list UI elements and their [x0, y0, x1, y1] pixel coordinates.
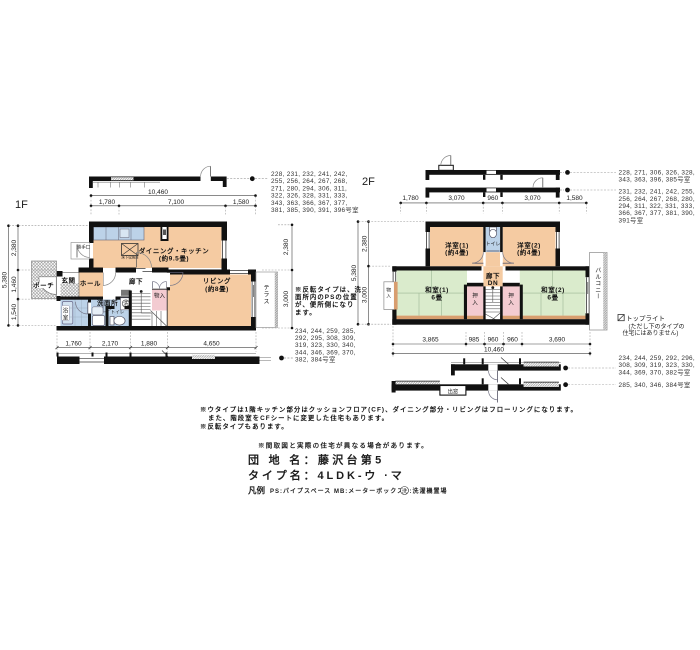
svg-text:物入: 物入 — [154, 291, 166, 299]
svg-text:トイレ: トイレ — [485, 242, 500, 248]
svg-text:押: 押 — [508, 292, 514, 300]
svg-text:960: 960 — [488, 337, 499, 344]
svg-text:1,580: 1,580 — [233, 199, 250, 206]
svg-text:入: 入 — [508, 301, 514, 307]
svg-text:3,000: 3,000 — [283, 290, 290, 307]
svg-text:凡例: 凡例 — [248, 486, 266, 496]
svg-text:廊下: 廊下 — [486, 271, 500, 280]
svg-text:ホール: ホール — [80, 279, 101, 287]
svg-text:1,780: 1,780 — [99, 199, 116, 206]
svg-text:ポーチ: ポーチ — [33, 280, 54, 289]
svg-text:玄関: 玄関 — [61, 276, 75, 285]
svg-text:出窓: 出窓 — [448, 388, 459, 396]
svg-text:団 地 名：藤沢台第5: 団 地 名：藤沢台第5 — [248, 453, 385, 467]
svg-text:ダイニング・キッチン: ダイニング・キッチン — [139, 246, 210, 255]
svg-text:1,540: 1,540 — [11, 303, 18, 320]
svg-text:※ウタイプは1階キッチン部分はクッションフロア(CF)、ダイ: ※ウタイプは1階キッチン部分はクッションフロア(CF)、ダイニング部分・リビング… — [200, 405, 578, 414]
svg-text:1F: 1F — [15, 199, 28, 211]
svg-text:(約9.5畳): (約9.5畳) — [159, 254, 189, 263]
svg-text:※反転タイプもあります。: ※反転タイプもあります。 — [200, 422, 289, 431]
svg-text:285, 340, 346, 384号室: 285, 340, 346, 384号室 — [619, 380, 691, 389]
svg-text:1,580: 1,580 — [566, 195, 583, 202]
svg-text:(約4畳): (約4畳) — [445, 248, 469, 257]
svg-text:住宅にはありません): 住宅にはありません) — [623, 329, 679, 337]
svg-text:リビング: リビング — [203, 276, 231, 285]
svg-text:室: 室 — [63, 313, 69, 321]
svg-text:和室(1): 和室(1) — [424, 285, 449, 294]
svg-text:押: 押 — [472, 292, 478, 300]
svg-text:1,760: 1,760 — [65, 340, 82, 347]
svg-text:7,100: 7,100 — [168, 199, 185, 206]
svg-text:5,380: 5,380 — [351, 264, 358, 281]
svg-text:DN: DN — [488, 280, 499, 287]
svg-text:1,880: 1,880 — [141, 340, 158, 347]
svg-text:また、階段室をCFシートに変更した住宅もあります。: また、階段室をCFシートに変更した住宅もあります。 — [208, 413, 389, 422]
svg-text:(約8畳): (約8畳) — [205, 284, 229, 293]
svg-text:洋室(2): 洋室(2) — [517, 241, 541, 250]
svg-text:3,070: 3,070 — [524, 195, 541, 202]
svg-text:10,460: 10,460 — [484, 347, 504, 354]
svg-text:1,780: 1,780 — [402, 195, 419, 202]
svg-text:入: 入 — [386, 294, 391, 300]
svg-text:2,380: 2,380 — [362, 235, 369, 252]
svg-text:10,460: 10,460 — [148, 189, 168, 196]
svg-text:960: 960 — [487, 195, 498, 202]
svg-text:(約4畳): (約4畳) — [517, 248, 541, 257]
svg-text:(ただし下のタイプの: (ただし下のタイプの — [629, 322, 685, 330]
svg-text:トイレ: トイレ — [111, 309, 125, 314]
svg-text::洗濯機置場: :洗濯機置場 — [410, 487, 448, 495]
svg-text:勝手口: 勝手口 — [77, 243, 91, 250]
svg-text:4,650: 4,650 — [203, 340, 220, 347]
svg-text:960: 960 — [507, 337, 518, 344]
svg-text:洋室(1): 洋室(1) — [445, 241, 469, 250]
svg-text:廊下: 廊下 — [129, 276, 143, 285]
svg-text:物: 物 — [386, 287, 391, 294]
svg-text:2,380: 2,380 — [283, 238, 290, 255]
svg-text:洗: 洗 — [402, 487, 408, 495]
svg-text:6畳: 6畳 — [431, 293, 442, 302]
svg-text:2F: 2F — [362, 176, 375, 188]
svg-text:6畳: 6畳 — [547, 293, 558, 302]
svg-text:1,460: 1,460 — [11, 276, 18, 293]
svg-text:和室(2): 和室(2) — [540, 285, 565, 294]
svg-text:トップライト: トップライト — [626, 314, 665, 322]
svg-text:2,380: 2,380 — [11, 239, 18, 256]
svg-text:3,000: 3,000 — [362, 286, 369, 303]
svg-text:5,380: 5,380 — [2, 271, 9, 288]
svg-text:浴: 浴 — [63, 306, 69, 314]
svg-text:バルコニー: バルコニー — [594, 267, 601, 300]
svg-text:3,865: 3,865 — [422, 337, 439, 344]
svg-text:※間取図と実際の住宅が異なる場合があります。: ※間取図と実際の住宅が異なる場合があります。 — [258, 441, 429, 450]
svg-text:228, 231, 232, 241, 242,255, 2: 228, 231, 232, 241, 242,255, 256, 264, 2… — [271, 171, 359, 214]
svg-text:タイプ名：4LDK-ウ ·マ: タイプ名：4LDK-ウ ·マ — [248, 468, 405, 482]
svg-text:PS:パイプスペース MB:メーターボックス: PS:パイプスペース MB:メーターボックス — [270, 487, 404, 495]
svg-text:228, 271, 306, 326, 328,343, 3: 228, 271, 306, 326, 328,343, 363, 396, 3… — [619, 169, 696, 183]
svg-text:3,690: 3,690 — [549, 337, 566, 344]
svg-text:3,070: 3,070 — [448, 195, 465, 202]
svg-text:2,170: 2,170 — [102, 340, 119, 347]
svg-text:985: 985 — [469, 337, 480, 344]
svg-text:テラス: テラス — [262, 284, 269, 305]
svg-text:入: 入 — [472, 301, 478, 307]
svg-text:234, 244, 259, 292, 296,308, 3: 234, 244, 259, 292, 296,308, 309, 319, 3… — [619, 355, 696, 376]
